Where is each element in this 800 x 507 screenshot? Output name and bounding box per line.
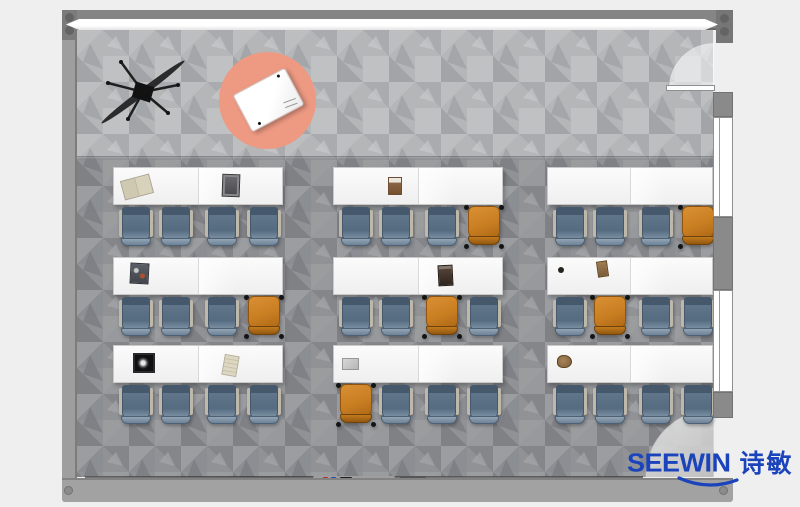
desk-front-right	[547, 167, 713, 253]
chair-blue	[205, 207, 239, 247]
table-item-dot	[558, 267, 564, 273]
table-item-open-book	[120, 173, 154, 200]
chair-blue	[119, 297, 153, 337]
chair-blue	[425, 385, 459, 425]
desk-front-left	[113, 167, 283, 253]
desk-table	[547, 345, 713, 383]
chair-orange	[244, 295, 284, 339]
desk-table	[547, 257, 713, 295]
chair-blue	[553, 297, 587, 337]
window-upper	[713, 117, 733, 217]
desk-middle-left	[113, 257, 283, 343]
door-leaf-top-right	[666, 85, 715, 91]
chair-orange	[336, 383, 376, 427]
table-item-dark-book	[437, 265, 453, 287]
chair-blue	[425, 207, 459, 247]
chair-blue	[159, 385, 193, 425]
desk-back-right	[547, 345, 713, 431]
desk-table	[333, 167, 503, 205]
table-item-small-brown	[596, 260, 609, 277]
chair-blue	[681, 385, 715, 425]
wall-pier-2	[713, 217, 733, 290]
desk-table	[113, 257, 283, 295]
desk-middle-right	[547, 257, 713, 343]
chair-blue	[467, 297, 501, 337]
wall-screw-bottom-left	[64, 486, 73, 495]
logo-swoosh-icon	[677, 475, 741, 491]
wall-pier-1	[713, 92, 733, 117]
desk-table	[547, 167, 713, 205]
desk-table	[113, 345, 283, 383]
chair-blue	[119, 207, 153, 247]
chair-blue	[681, 297, 715, 337]
chair-blue	[159, 207, 193, 247]
chair-blue	[339, 297, 373, 337]
chair-blue	[379, 297, 413, 337]
chair-blue	[593, 207, 627, 247]
logo-text: SEEWIN	[627, 451, 731, 477]
chair-blue	[247, 385, 281, 425]
chair-blue	[247, 207, 281, 247]
chair-blue	[639, 385, 673, 425]
chair-blue	[159, 297, 193, 337]
table-item-framed-pic	[133, 353, 155, 373]
window-lower	[713, 290, 733, 392]
table-item-brown-book	[388, 177, 402, 195]
desk-table	[333, 257, 503, 295]
desk-back-left	[113, 345, 283, 431]
chair-blue	[639, 207, 673, 247]
classroom-floor-plan: SEEWIN 诗敏	[0, 0, 800, 507]
chair-blue	[553, 385, 587, 425]
chair-orange	[590, 295, 630, 339]
desk-table	[113, 167, 283, 205]
wall-bottom	[62, 478, 733, 502]
desk-front-center	[333, 167, 503, 253]
chair-blue	[205, 297, 239, 337]
chair-blue	[467, 385, 501, 425]
chair-orange	[464, 205, 504, 249]
chair-blue	[379, 207, 413, 247]
chair-blue	[639, 297, 673, 337]
chair-blue	[119, 385, 153, 425]
chair-blue	[553, 207, 587, 247]
table-item-laptop	[342, 358, 359, 370]
table-item-crumpled	[557, 355, 572, 368]
desk-table	[333, 345, 503, 383]
wall-pier-3	[713, 392, 733, 418]
wall-corner-top-right	[716, 10, 733, 43]
chair-blue	[205, 385, 239, 425]
desk-back-center	[333, 345, 503, 431]
chair-blue	[379, 385, 413, 425]
logo-cjk-text: 诗敏	[740, 450, 794, 477]
chair-orange	[422, 295, 462, 339]
table-item-tablet	[222, 174, 241, 198]
table-item-paper	[221, 354, 239, 377]
desk-middle-center	[333, 257, 503, 343]
wall-left	[62, 10, 77, 502]
brand-logo: SEEWIN 诗敏	[627, 450, 794, 477]
chair-orange	[678, 205, 718, 249]
chair-blue	[339, 207, 373, 247]
whiteboard-strip	[66, 19, 718, 30]
chair-blue	[593, 385, 627, 425]
table-item-magazine	[129, 263, 149, 285]
